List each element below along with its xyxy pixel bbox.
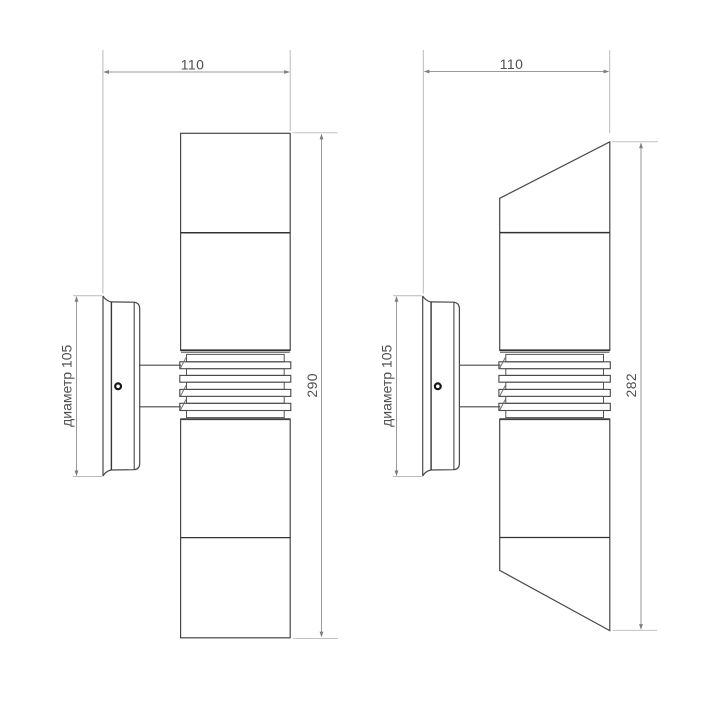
svg-text:диаметр 105: диаметр 105 [59,345,75,427]
svg-text:282: 282 [623,373,639,398]
svg-text:диаметр 105: диаметр 105 [379,345,395,427]
svg-text:110: 110 [500,56,524,72]
svg-text:290: 290 [304,373,320,398]
svg-text:110: 110 [181,57,205,73]
